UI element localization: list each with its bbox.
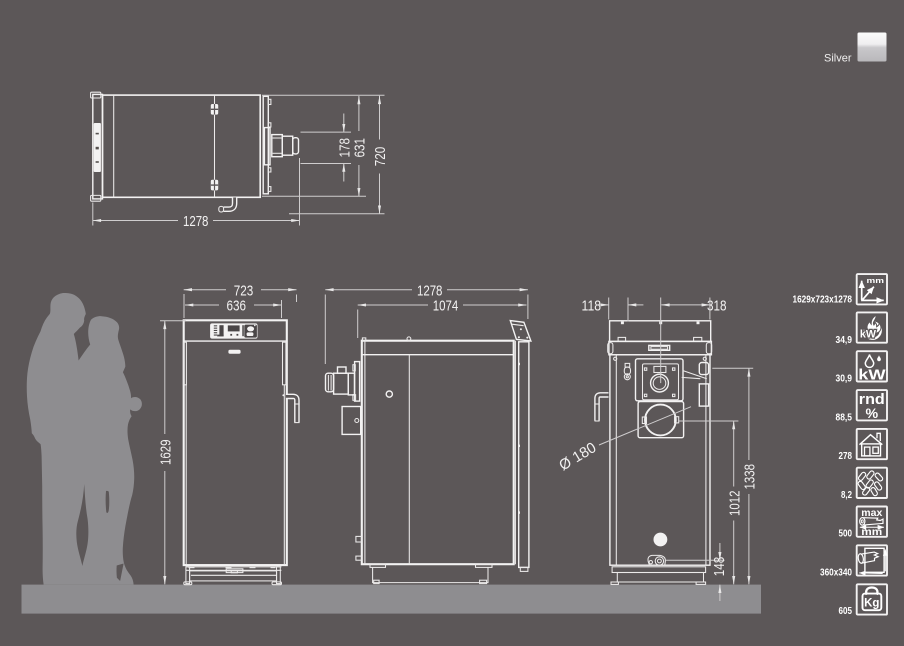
svg-text:605: 605	[839, 605, 853, 617]
svg-text:1074: 1074	[433, 298, 459, 315]
svg-text:34,9: 34,9	[836, 334, 853, 346]
svg-text:118: 118	[582, 298, 602, 315]
svg-text:mm: mm	[861, 527, 882, 538]
svg-text:Silver: Silver	[824, 52, 852, 64]
svg-text:kW: kW	[860, 329, 877, 341]
svg-text:kW: kW	[858, 367, 886, 383]
svg-text:500: 500	[839, 528, 853, 540]
svg-text:Kg: Kg	[864, 598, 879, 610]
svg-text:360x340: 360x340	[820, 566, 852, 578]
svg-text:1012: 1012	[726, 491, 743, 517]
svg-text:636: 636	[227, 298, 247, 315]
svg-text:278: 278	[839, 450, 853, 462]
svg-text:148: 148	[711, 557, 728, 577]
svg-text:1629x723x1278: 1629x723x1278	[793, 294, 853, 306]
svg-text:1278: 1278	[183, 213, 209, 230]
svg-text:631: 631	[352, 138, 369, 158]
svg-text:1338: 1338	[742, 464, 759, 490]
svg-text:mm: mm	[866, 276, 884, 285]
svg-text:1629: 1629	[158, 440, 175, 466]
svg-text:8,2: 8,2	[841, 489, 852, 501]
svg-text:%: %	[865, 406, 878, 422]
svg-text:30,9: 30,9	[836, 373, 853, 385]
svg-text:88,5: 88,5	[836, 411, 853, 423]
svg-text:720: 720	[372, 147, 389, 167]
